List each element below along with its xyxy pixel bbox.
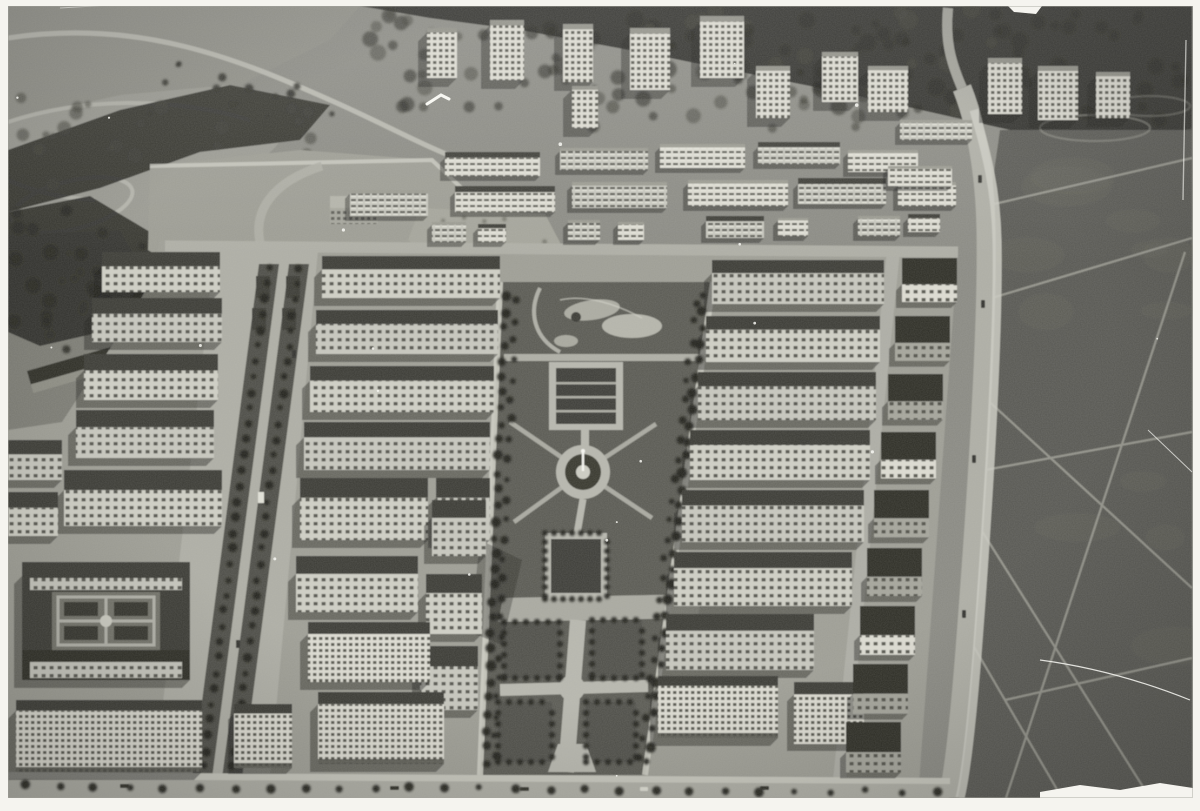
photo-print <box>0 0 1200 811</box>
tree-blob <box>50 347 52 349</box>
tree-blob <box>871 450 874 453</box>
tree-blob <box>738 243 741 246</box>
tree-blob <box>753 322 756 325</box>
tree-blob <box>108 117 110 119</box>
tree-blob <box>639 460 642 463</box>
vignette <box>8 6 1193 798</box>
tree-blob <box>468 573 471 576</box>
tree-blob <box>1156 338 1158 340</box>
tree-blob <box>855 103 859 107</box>
tree-blob <box>372 347 375 350</box>
tree-blob <box>342 228 345 231</box>
tree-blob <box>616 775 618 777</box>
tree-blob <box>734 63 736 65</box>
tree-blob <box>377 390 379 392</box>
tree-blob <box>273 557 276 560</box>
tree-blob <box>199 344 202 347</box>
tree-blob <box>605 539 608 542</box>
aerial-photograph <box>0 0 1200 811</box>
tree-blob <box>616 521 618 523</box>
tree-blob <box>16 97 18 99</box>
tree-blob <box>559 142 563 146</box>
